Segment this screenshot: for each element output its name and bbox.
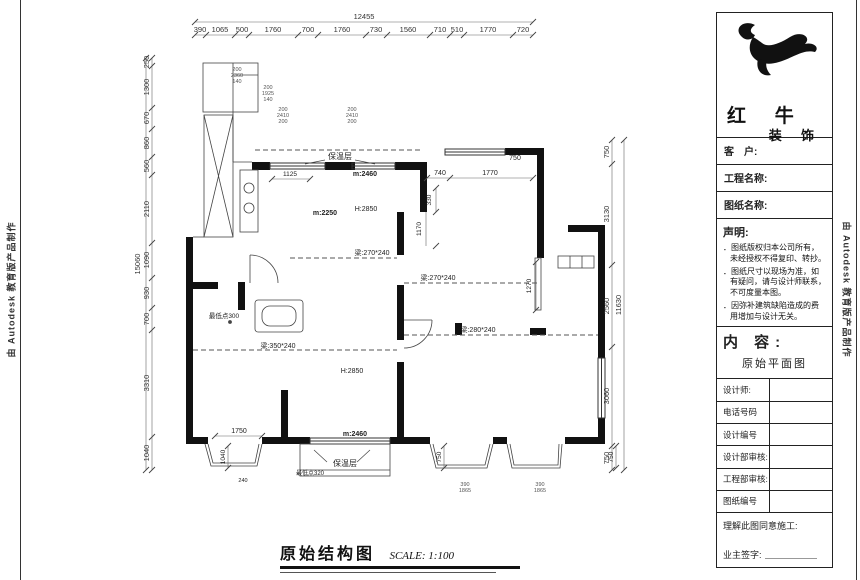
lowest-point-300: 最低点300: [209, 311, 240, 320]
window-height-top: m:2460: [353, 171, 377, 178]
dim: 670: [142, 112, 151, 125]
beam-label-b: 梁:270*240: [420, 273, 455, 282]
sheet-border-right: [856, 0, 857, 580]
dim: 250: [142, 56, 151, 69]
dim: 200: [347, 119, 356, 125]
kitchen-counter: [240, 170, 258, 232]
statement-list: 图纸版权归本公司所有，未经授权不得复印、转抄。 图纸尺寸以现场为准，如有疑问，请…: [723, 243, 826, 323]
content-value: 原始平面图: [723, 355, 826, 371]
owner-signature-label: 业主签字:: [723, 548, 762, 561]
dim: 560: [142, 160, 151, 173]
bull-logo-icon: [725, 17, 825, 103]
design-number-value: [770, 424, 832, 445]
dim: 700: [302, 25, 315, 34]
dim: 3130: [602, 206, 611, 223]
phone-label: 电话号码: [717, 402, 770, 423]
windows: [270, 149, 605, 444]
drawing-sheet: 由 Autodesk 教育版产品制作 由 Autodesk 教育版产品制作: [0, 0, 860, 580]
ceiling-height-bottom: H:2850: [341, 368, 364, 375]
dim: 930: [142, 287, 151, 300]
dim-total-left: 15060: [133, 254, 142, 275]
beam-label-280: 梁:280*240: [460, 325, 495, 334]
dim-1770: 1770: [482, 170, 498, 177]
dim-750-b: 750: [608, 451, 615, 462]
engineering-audit-row: 工程部审核:: [717, 468, 832, 490]
content-title: 内 容:: [723, 331, 826, 352]
project-name-row: 工程名称:: [717, 164, 832, 191]
drawing-scale: SCALE: 1:100: [389, 550, 453, 562]
dim-750-top: 750: [509, 155, 521, 162]
design-number-row: 设计编号: [717, 423, 832, 445]
drawing-name-row: 图纸名称:: [717, 191, 832, 218]
walls-thick: [186, 148, 605, 444]
dim: 750: [602, 146, 611, 159]
dim: 200: [278, 119, 287, 125]
dim-330: 330: [426, 194, 433, 205]
dim: 3060: [602, 388, 611, 405]
brand-name: 红 牛: [727, 101, 806, 128]
top-dimension-chain: 12455 390 1065 500 1760 700 1760 730 156…: [194, 12, 530, 34]
signature-section: 理解此图同意施工: 业主签字:: [717, 512, 832, 567]
brand-suffix: 装 饰: [769, 125, 822, 144]
ceiling-height-top: H:2850: [355, 206, 378, 213]
designer-label: 设计师:: [717, 379, 770, 400]
bay-window-right: [507, 444, 562, 468]
drawing-title-text: 原始结构图: [280, 540, 375, 564]
top-left-balcony: [203, 63, 258, 112]
project-name-label: 工程名称:: [724, 170, 767, 185]
design-audit-label: 设计部审核:: [717, 446, 770, 467]
statement-item: 因弥补建筑缺陷造成的费用增加与设计无关。: [723, 301, 826, 323]
statement-item: 图纸版权归本公司所有，未经授权不得复印、转抄。: [723, 243, 826, 265]
insulation-label-bottom: 保温层: [333, 458, 357, 468]
dim: 2560: [602, 298, 611, 315]
dim-1270: 1270: [526, 278, 533, 293]
dim: 140: [232, 79, 241, 85]
dim: 1770: [480, 25, 497, 34]
design-audit-row: 设计部审核:: [717, 445, 832, 467]
dim: 710: [434, 25, 447, 34]
label-m2250: m:2250: [313, 210, 337, 217]
dimension-ticks: [143, 19, 627, 473]
dim: 2110: [142, 201, 151, 217]
dim: 1300: [142, 79, 151, 96]
drawing-number-label: 图纸编号: [717, 491, 770, 512]
dim: 860: [142, 137, 151, 150]
dim: 500: [236, 25, 249, 34]
dim: 720: [517, 25, 530, 34]
dim-1125: 1125: [283, 171, 297, 178]
dimension-lines: [146, 22, 624, 470]
agree-text: 理解此图同意施工:: [723, 519, 826, 532]
lowest-point-320: 最低点320: [296, 469, 325, 477]
engineering-audit-label: 工程部审核:: [717, 469, 770, 490]
walls-thin: [193, 63, 594, 476]
dim: 1040: [142, 445, 151, 462]
dim: 1760: [265, 25, 282, 34]
left-dimension-chain: 15060 250 1300 670 860 560 2110 1090 930…: [133, 56, 151, 462]
engineering-audit-value: [770, 469, 832, 490]
dim-total-right: 11630: [614, 295, 623, 315]
dim-1170: 1170: [416, 222, 423, 236]
content-section: 内 容: 原始平面图: [717, 326, 832, 378]
designer-row: 设计师:: [717, 378, 832, 400]
design-number-label: 设计编号: [717, 424, 770, 445]
dim: 390: [194, 25, 207, 34]
dim: 1760: [334, 25, 351, 34]
phone-value: [770, 402, 832, 423]
phone-row: 电话号码: [717, 401, 832, 423]
drawing-name-label: 图纸名称:: [724, 197, 767, 212]
dim: 1065: [212, 25, 229, 34]
customer-label: 客 户:: [724, 143, 757, 158]
title-underline-thin: [280, 572, 496, 573]
plan-labels: 保温层 1125 m:2460 m:2250 H:2850 梁:270*240 …: [209, 151, 615, 484]
dim-total-top: 12455: [354, 12, 375, 21]
autodesk-watermark-right: 由 Autodesk 教育版产品制作: [841, 195, 854, 385]
drawing-number-value: [770, 491, 832, 512]
door-arc: [250, 255, 278, 283]
dim: 1865: [459, 488, 471, 494]
statement-item: 图纸尺寸以现场为准，如有疑问，请与设计师联系，不可度量本图。: [723, 267, 826, 299]
designer-value: [770, 379, 832, 400]
beam-label-a: 梁:270*240: [354, 248, 389, 257]
dim: 510: [451, 25, 464, 34]
dim: 700: [142, 313, 151, 326]
dim-1750: 1750: [231, 428, 247, 435]
window-height-bottom: m:2460: [343, 431, 367, 438]
title-underline: [280, 566, 520, 569]
dim-740: 740: [434, 170, 446, 177]
dim-240: 240: [238, 478, 247, 484]
floor-plan-canvas: 12455 390 1065 500 1760 700 1760 730 156…: [0, 0, 715, 580]
statement-section: 声明: 图纸版权归本公司所有，未经授权不得复印、转抄。 图纸尺寸以现场为准，如有…: [717, 218, 832, 326]
logo-section: 红 牛 装 饰: [717, 13, 832, 137]
dim-750-a: 750: [436, 451, 443, 462]
dim: 730: [370, 25, 383, 34]
dim: 3310: [142, 375, 151, 392]
beam-label-350: 梁:350*240: [260, 341, 295, 350]
dim: 1560: [400, 25, 417, 34]
insulation-label-top: 保温层: [328, 151, 352, 161]
drawing-title: 原始结构图 SCALE: 1:100: [280, 540, 520, 573]
dim: 1865: [534, 488, 546, 494]
statement-title: 声明:: [723, 224, 826, 240]
dim-1040: 1040: [220, 449, 227, 464]
design-audit-value: [770, 446, 832, 467]
title-block: 红 牛 装 饰 客 户: 工程名称: 图纸名称: 声明: 图纸版权归本公司所有，…: [716, 12, 833, 568]
drawing-number-row: 图纸编号: [717, 490, 832, 512]
dim: 140: [263, 97, 272, 103]
door-arc: [404, 320, 432, 348]
signature-line: [765, 558, 817, 559]
radiator: [558, 256, 594, 268]
dim: 1090: [142, 252, 151, 269]
